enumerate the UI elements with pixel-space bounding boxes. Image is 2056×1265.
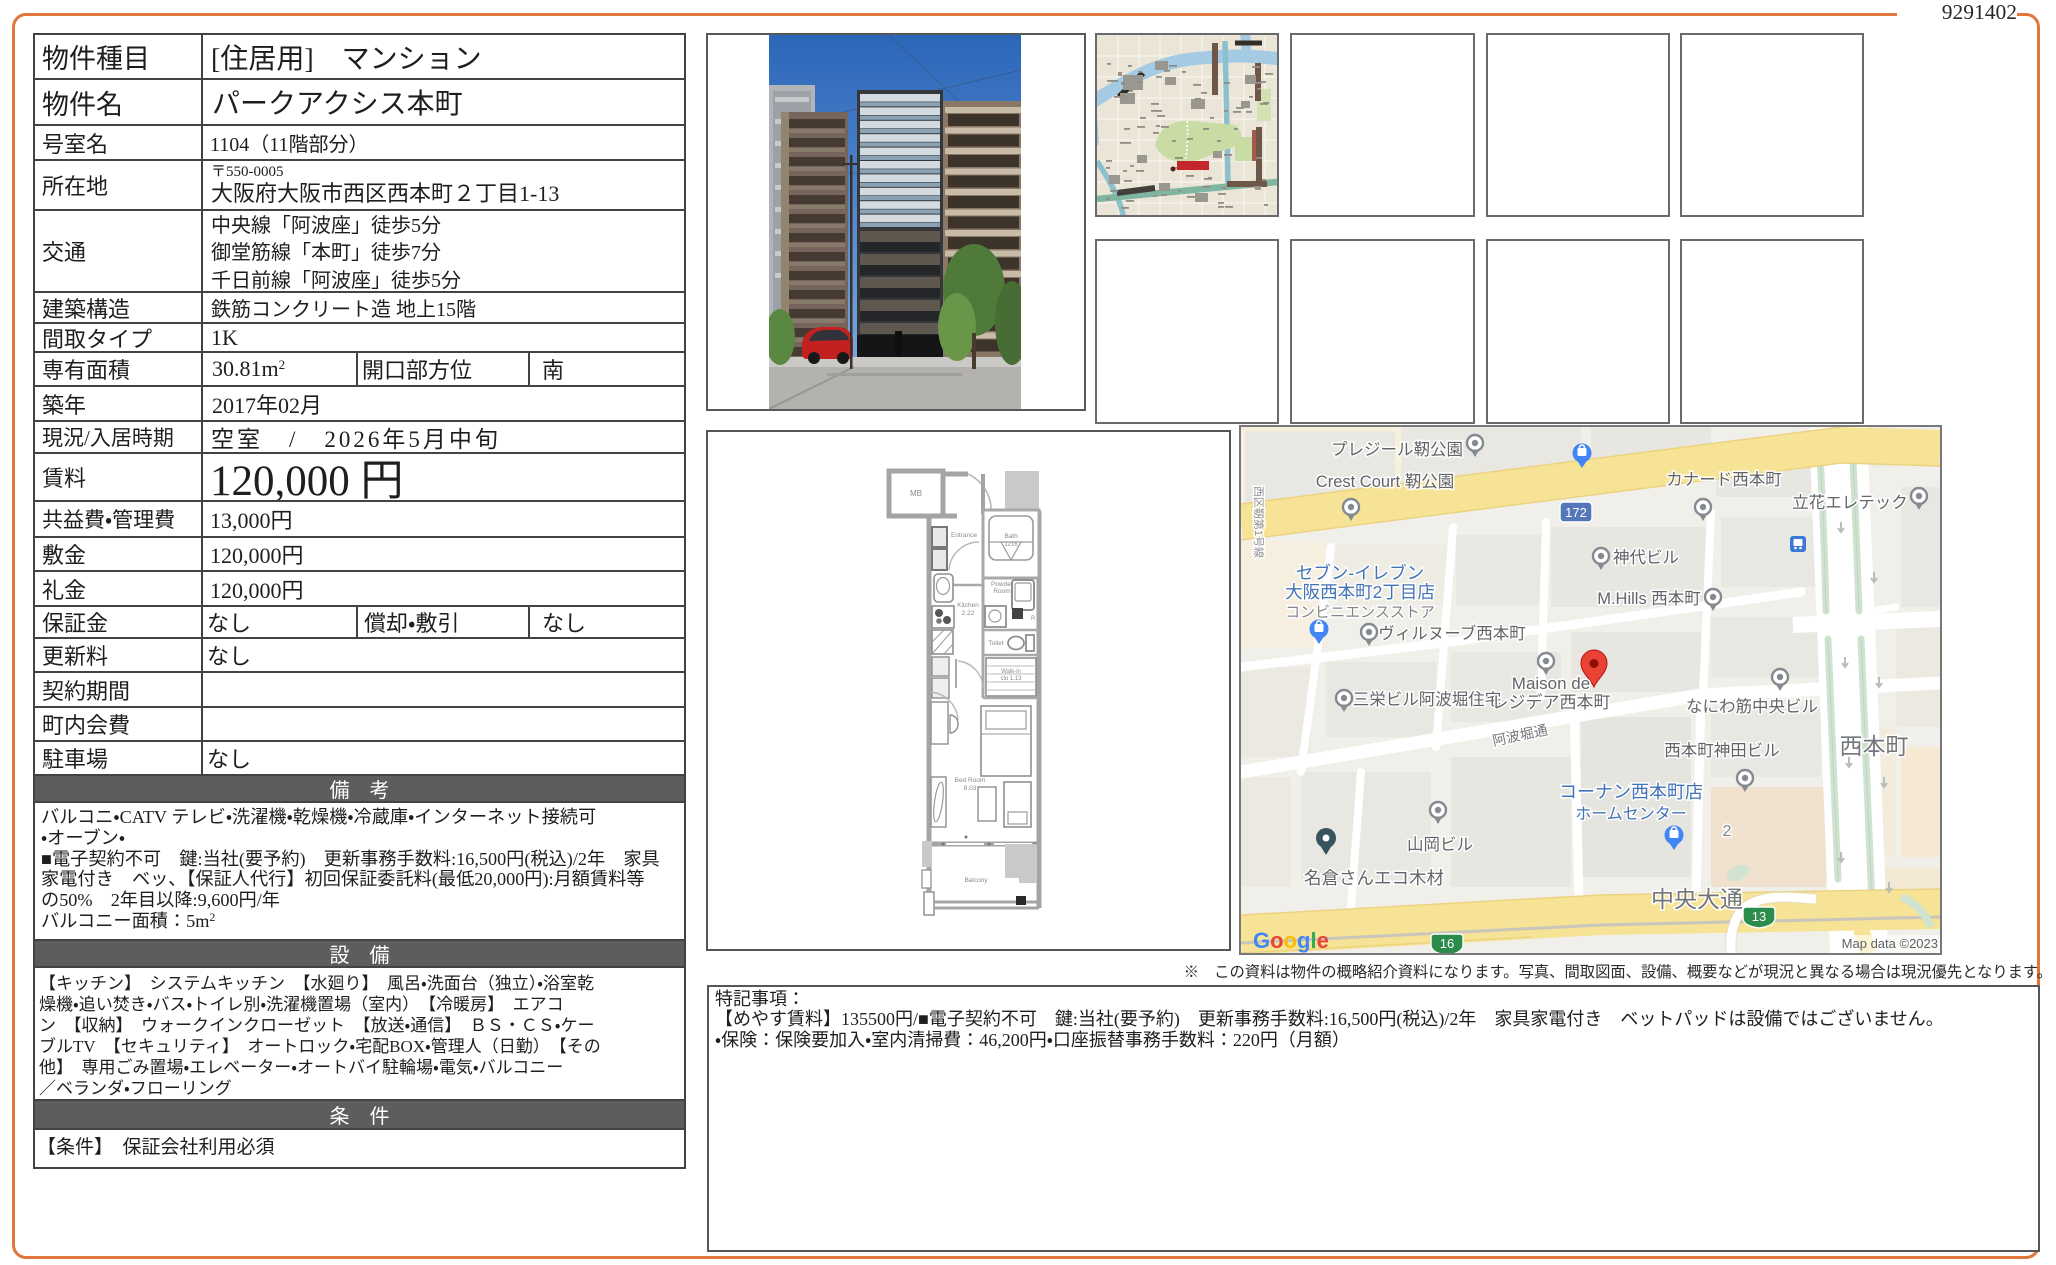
svg-text:Kitchen: Kitchen: [957, 602, 979, 609]
svg-text:Crest Court 靭公園: Crest Court 靭公園: [1316, 472, 1454, 491]
svg-text:8.03: 8.03: [964, 785, 977, 792]
svg-text:172: 172: [1565, 505, 1587, 520]
svg-text:Maison de: Maison de: [1512, 674, 1590, 693]
svg-text:プレジール靭公園: プレジール靭公園: [1331, 440, 1463, 459]
svg-text:2.22: 2.22: [962, 610, 975, 617]
svg-text:Balcony: Balcony: [964, 877, 988, 884]
svg-text:Entrance: Entrance: [951, 532, 977, 539]
svg-text:Bath: Bath: [1004, 533, 1018, 540]
svg-text:Room: Room: [993, 588, 1010, 595]
svg-text:神代ビル: 神代ビル: [1613, 548, 1679, 567]
svg-text:なにわ筋中央ビル: なにわ筋中央ビル: [1686, 697, 1818, 716]
svg-text:Walk-in: Walk-in: [1001, 669, 1021, 675]
svg-text:MB: MB: [910, 489, 922, 498]
svg-text:clo 1.13: clo 1.13: [1000, 676, 1022, 682]
svg-text:名倉さんエコ木材: 名倉さんエコ木材: [1304, 868, 1444, 888]
svg-text:西本町神田ビル: 西本町神田ビル: [1664, 741, 1780, 760]
svg-text:コーナン西本町店: コーナン西本町店: [1559, 782, 1703, 802]
svg-text:西本町: 西本町: [1840, 733, 1909, 759]
svg-text:中央大通: 中央大通: [1651, 886, 1743, 912]
svg-text:大阪西本町2丁目店: 大阪西本町2丁目店: [1285, 582, 1435, 602]
svg-text:レジデア西本町: レジデア西本町: [1492, 692, 1611, 712]
svg-text:ホームセンター: ホームセンター: [1575, 805, 1687, 823]
svg-text:13: 13: [1752, 909, 1766, 924]
svg-text:Bed Room: Bed Room: [955, 777, 986, 784]
svg-text:西区靭第1号線: 西区靭第1号線: [1252, 486, 1266, 558]
svg-text:コンビニエンスストア: コンビニエンスストア: [1285, 604, 1435, 621]
svg-text:山岡ビル: 山岡ビル: [1407, 835, 1473, 854]
svg-text:Map data ©2023: Map data ©2023: [1842, 936, 1938, 951]
svg-text:R: R: [1031, 616, 1036, 622]
svg-text:カナード西本町: カナード西本町: [1666, 470, 1782, 489]
svg-text:1216: 1216: [1004, 542, 1018, 548]
svg-text:ヴィルヌーブ西本町: ヴィルヌーブ西本町: [1378, 623, 1526, 643]
svg-text:M.Hills 西本町: M.Hills 西本町: [1597, 589, 1701, 608]
svg-text:立花エレテック: 立花エレテック: [1792, 493, 1908, 512]
svg-text:Google: Google: [1253, 928, 1329, 953]
svg-text:三栄ビル阿波堀住宅: 三栄ビル阿波堀住宅: [1353, 690, 1502, 709]
svg-text:セブン-イレブン: セブン-イレブン: [1296, 563, 1424, 583]
svg-text:16: 16: [1440, 936, 1454, 951]
svg-text:Powder: Powder: [991, 581, 1014, 588]
svg-text:Toilet: Toilet: [988, 640, 1003, 647]
svg-text:2: 2: [1723, 823, 1732, 840]
